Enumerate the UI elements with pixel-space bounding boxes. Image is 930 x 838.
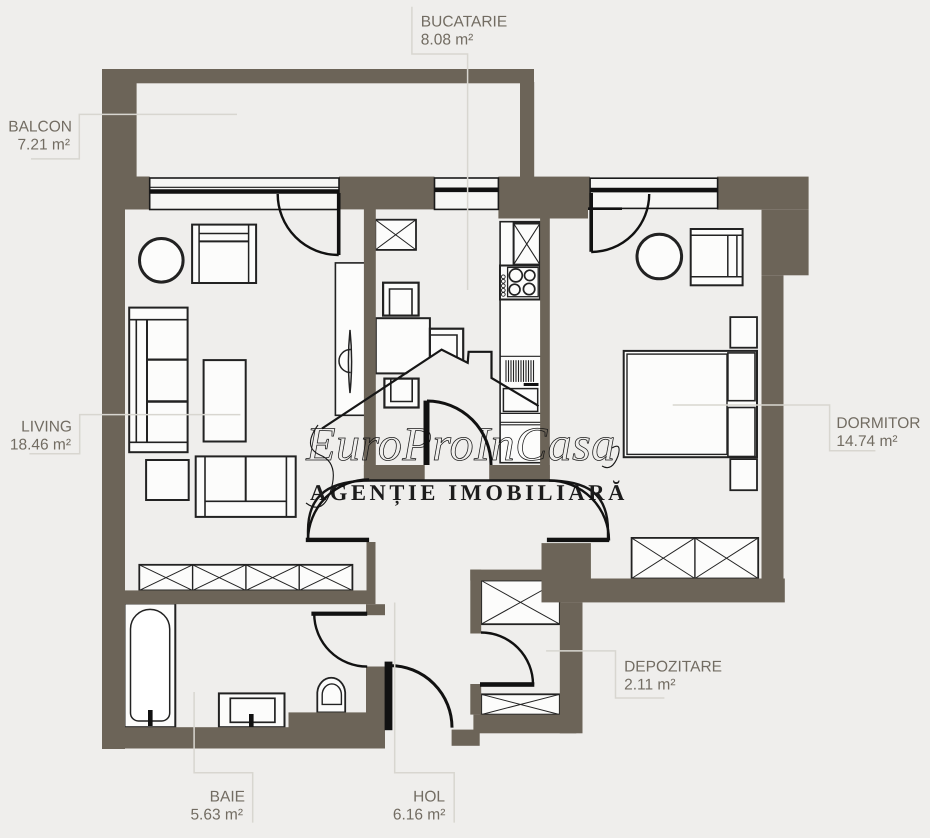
svg-text:DORMITOR: DORMITOR xyxy=(836,415,920,432)
svg-text:18.46 m²: 18.46 m² xyxy=(10,437,71,454)
svg-text:2.11 m²: 2.11 m² xyxy=(624,677,675,694)
svg-text:14.74 m²: 14.74 m² xyxy=(836,433,897,450)
svg-text:BAIE: BAIE xyxy=(210,789,245,806)
svg-text:6.16 m²: 6.16 m² xyxy=(393,807,446,824)
svg-text:AGENȚIE IMOBILIARĂ: AGENȚIE IMOBILIARĂ xyxy=(310,480,628,506)
svg-text:5.63 m²: 5.63 m² xyxy=(190,807,243,824)
svg-text:HOL: HOL xyxy=(413,789,445,806)
svg-text:DEPOZITARE: DEPOZITARE xyxy=(624,659,722,676)
svg-text:BALCON: BALCON xyxy=(8,119,72,136)
svg-text:7.21 m²: 7.21 m² xyxy=(17,137,70,154)
svg-text:EuroProInCasa: EuroProInCasa xyxy=(305,418,616,471)
svg-text:8.08 m²: 8.08 m² xyxy=(421,32,474,49)
svg-text:LIVING: LIVING xyxy=(21,419,72,436)
svg-text:BUCATARIE: BUCATARIE xyxy=(421,14,507,31)
